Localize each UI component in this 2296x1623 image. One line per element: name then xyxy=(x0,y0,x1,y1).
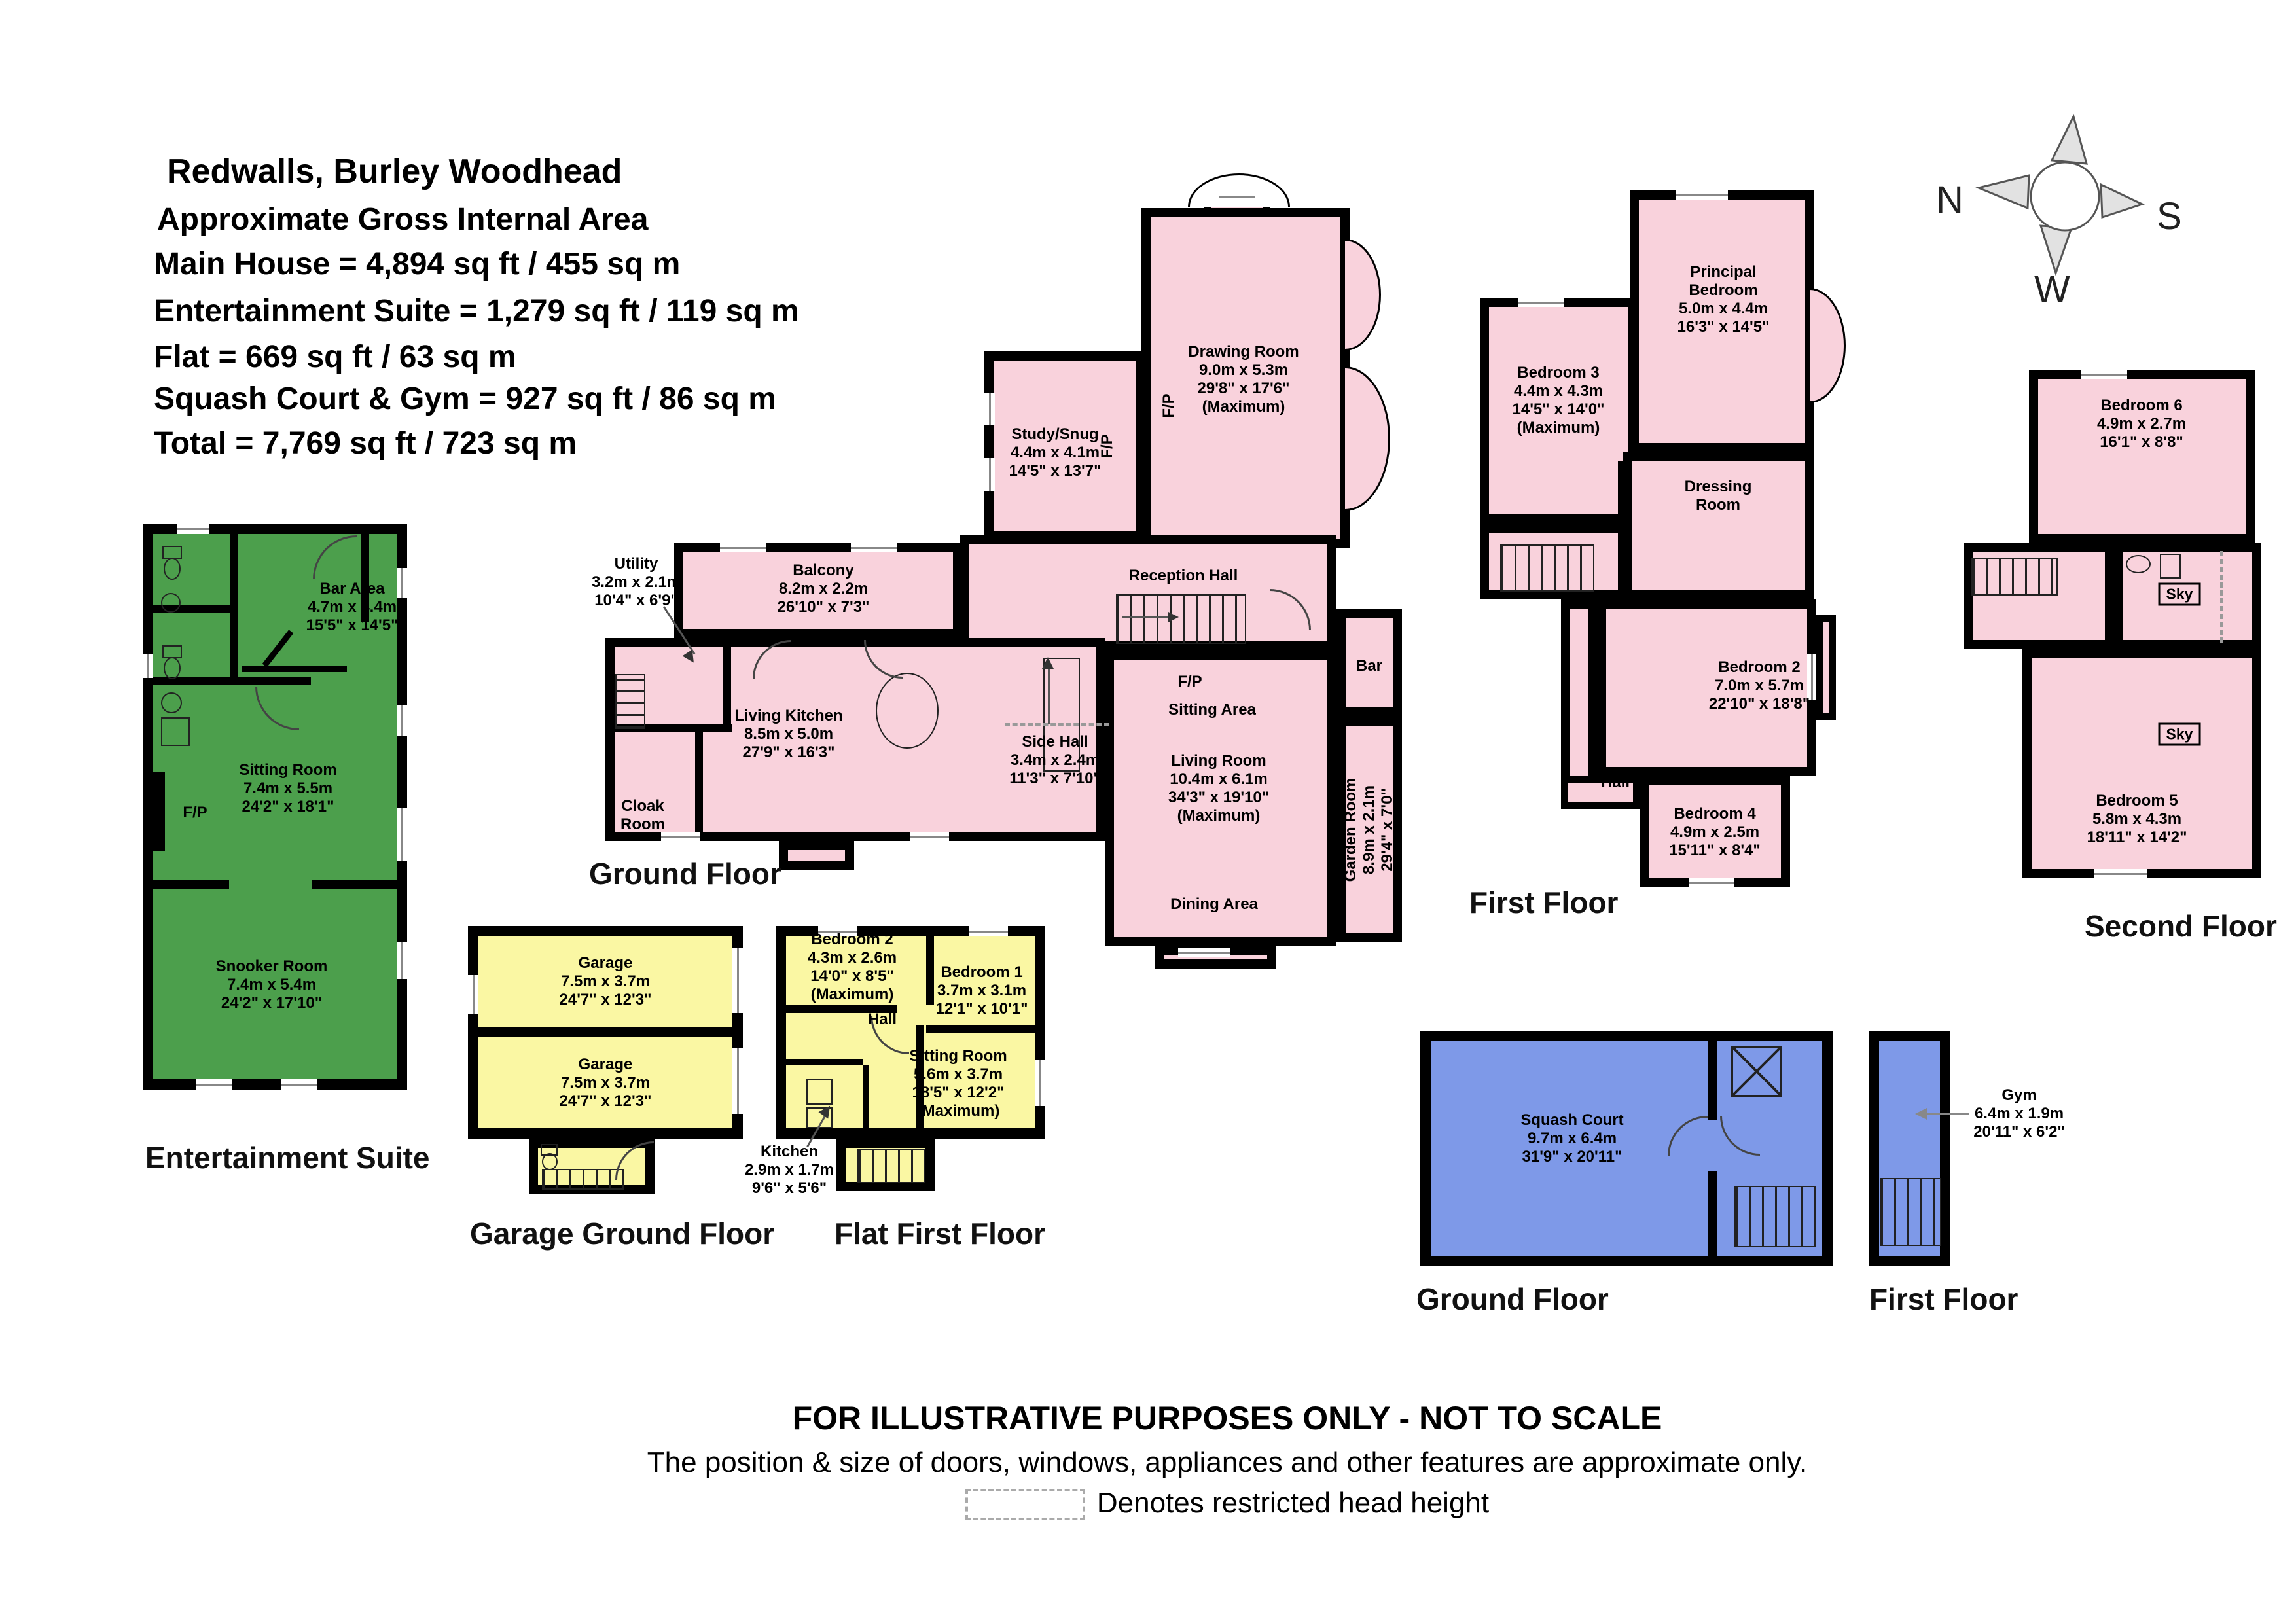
label-line: Sitting Area xyxy=(1168,701,1256,719)
label-line: 7.4m x 5.5m xyxy=(239,779,336,798)
room-label-bedroom-3: Bedroom 34.4m x 4.3m14'5" x 14'0"(Maximu… xyxy=(1513,364,1605,437)
label-line: 16'1" x 8'8" xyxy=(2097,433,2186,452)
compass-point-right xyxy=(2101,185,2142,217)
window xyxy=(984,458,995,491)
label-line: 14'5" x 14'0" xyxy=(1513,401,1605,419)
label-line: 31'9" x 20'11" xyxy=(1520,1148,1623,1166)
label-line: Bedroom 2 xyxy=(808,931,897,949)
header-subtitle: Approximate Gross Internal Area xyxy=(157,202,648,238)
room-dressing xyxy=(1623,452,1814,599)
label-line: Bedroom xyxy=(1677,281,1770,300)
label-line: Sky xyxy=(2166,726,2193,743)
garage-door-opening xyxy=(732,948,743,1013)
wall-es-snooker-right xyxy=(312,880,397,889)
header-entertainment-area: Entertainment Suite = 1,279 sq ft / 119 … xyxy=(154,293,799,329)
plan-title-squash-ground-floor: Ground Floor xyxy=(1416,1281,1609,1317)
wall-es-wc-column xyxy=(230,534,238,677)
label-line: Living Room xyxy=(1168,752,1269,770)
wall-squash-lower xyxy=(1708,1171,1717,1256)
restricted-head-height-line xyxy=(1005,723,1109,726)
basin-icon xyxy=(2126,555,2151,573)
stairs-utility xyxy=(615,674,645,729)
basin-icon xyxy=(161,692,182,713)
room-label-flat-sitting-room: Sitting Room5.6m x 3.7m18'5" x 12'2"(Max… xyxy=(909,1047,1007,1120)
label-line: Bedroom 6 xyxy=(2097,397,2186,415)
label-line: 26'10" x 7'3" xyxy=(778,598,870,616)
room-label-gym: Gym6.4m x 1.9m20'11" x 6'2" xyxy=(1973,1086,2065,1141)
label-line: 24'7" x 12'3" xyxy=(560,991,652,1009)
label-line: Utility xyxy=(592,555,681,573)
compass-label-s: S xyxy=(2157,195,2182,238)
room-label-squash-court: Squash Court9.7m x 6.4m31'9" x 20'11" xyxy=(1520,1111,1623,1166)
label-line: 8.9m x 2.1m xyxy=(1360,778,1378,882)
room-label-principal-bedroom: PrincipalBedroom5.0m x 4.4m16'3" x 14'5" xyxy=(1677,263,1770,336)
floorplan-canvas: Redwalls, Burley Woodhead Approximate Gr… xyxy=(0,0,2296,1623)
room-label-garden-room: Garden Room8.9m x 2.1m29'4" x 7'0" xyxy=(1342,778,1397,882)
window xyxy=(1178,948,1230,957)
label-line: 2.9m x 1.7m xyxy=(745,1161,834,1179)
room-label-flat-bedroom-2: Bedroom 24.3m x 2.6m14'0" x 8'5"(Maximum… xyxy=(808,931,897,1004)
label-line: F/P xyxy=(1177,673,1202,691)
plant-room-icon xyxy=(1731,1046,1782,1097)
room-bedroom-6 xyxy=(2029,370,2255,543)
label-line: 4.9m x 2.5m xyxy=(1669,823,1761,842)
room-label-bedroom-6: Bedroom 64.9m x 2.7m16'1" x 8'8" xyxy=(2097,397,2186,452)
header-main-house-area: Main House = 4,894 sq ft / 455 sq m xyxy=(154,246,680,282)
label-line: Reception Hall xyxy=(1129,567,1238,585)
label-line: 4.4m x 4.3m xyxy=(1513,382,1605,401)
label-line: 34'3" x 19'10" xyxy=(1168,789,1269,807)
label-line: 24'2" x 18'1" xyxy=(239,798,336,816)
wall-squash-upper xyxy=(1708,1041,1717,1120)
label-line: Snooker Room xyxy=(216,957,328,976)
plan-title-flat-first-floor: Flat First Floor xyxy=(834,1216,1045,1251)
window xyxy=(1219,192,1255,201)
label-line: 5.6m x 3.7m xyxy=(909,1065,1007,1084)
label-line: 3.2m x 2.1m xyxy=(592,573,681,592)
window xyxy=(969,926,1008,936)
label-line: 9.0m x 5.3m xyxy=(1188,361,1299,380)
window xyxy=(196,1079,232,1090)
stairs-arrow-head xyxy=(1168,612,1179,622)
window xyxy=(2081,370,2127,379)
stairs-flat xyxy=(857,1149,925,1183)
footer-disclaimer-text: The position & size of doors, windows, a… xyxy=(589,1446,1865,1479)
room-label-flat-bedroom-1: Bedroom 13.7m x 3.1m12'1" x 10'1" xyxy=(936,963,1028,1018)
footer-legend-text: Denotes restricted head height xyxy=(1097,1487,1489,1519)
plan-title-entertainment-suite: Entertainment Suite xyxy=(145,1140,430,1175)
label-line: Bar Area xyxy=(306,580,399,598)
label-line: Squash Court xyxy=(1520,1111,1623,1130)
label-line: 29'8" x 17'6" xyxy=(1188,380,1299,398)
label-line: 8.5m x 5.0m xyxy=(734,725,842,743)
label-line: Drawing Room xyxy=(1188,343,1299,361)
bay-window-arc xyxy=(1810,288,1846,403)
label-line: Gym xyxy=(1973,1086,2065,1105)
window xyxy=(468,975,478,1014)
label-line: Dressing xyxy=(1685,478,1752,496)
fireplace-label: F/P xyxy=(1160,393,1178,418)
bay-window-arc xyxy=(1345,366,1390,511)
room-label-flat-kitchen: Kitchen2.9m x 1.7m9'6" x 5'6" xyxy=(745,1143,834,1198)
label-line: 7.5m x 3.7m xyxy=(560,1074,652,1092)
label-line: 29'4" x 7'0" xyxy=(1378,778,1397,882)
room-label-reception-hall: Reception Hall xyxy=(1129,567,1238,585)
basin-icon xyxy=(161,593,181,613)
label-line: F/P xyxy=(1098,434,1117,458)
label-line: Principal xyxy=(1677,263,1770,281)
label-line: 4.3m x 2.6m xyxy=(808,949,897,967)
fireplace-label: F/P xyxy=(1177,673,1202,691)
kitchen-bay xyxy=(779,841,854,870)
label-line: 15'5" x 14'5" xyxy=(306,616,399,635)
window xyxy=(177,524,209,534)
gym-arrow-line xyxy=(1926,1113,1969,1115)
room-label-flat-hall: Hall xyxy=(868,1010,897,1029)
room-label-sitting-area: Sitting Area xyxy=(1168,701,1256,719)
room-label-dining-area: Dining Area xyxy=(1170,895,1258,914)
label-line: Sitting Room xyxy=(239,761,336,779)
window xyxy=(143,654,153,678)
label-line: Room xyxy=(1685,496,1752,514)
plan-title-second-floor: Second Floor xyxy=(2085,908,2277,944)
toilet-icon xyxy=(162,546,182,559)
es-fireplace-chimney xyxy=(143,772,165,851)
room-label-dressing-room: DressingRoom xyxy=(1685,478,1752,514)
label-line: Living Kitchen xyxy=(734,707,842,725)
window xyxy=(2094,869,2147,878)
bow-window-arc xyxy=(1188,173,1290,207)
label-line: 4.7m x 4.4m xyxy=(306,598,399,616)
fireplace-label: F/P xyxy=(1098,434,1117,458)
cooker-icon xyxy=(806,1079,833,1105)
stairs-reception xyxy=(1116,594,1246,644)
bar-counter xyxy=(242,666,347,672)
label-line: 18'11" x 14'2" xyxy=(2087,829,2187,847)
room-label-sitting-room: Sitting Room7.4m x 5.5m24'2" x 18'1" xyxy=(239,761,336,816)
room-label-utility: Utility3.2m x 2.1m10'4" x 6'9" xyxy=(592,555,681,610)
label-line: Bedroom 5 xyxy=(2087,792,2187,810)
window xyxy=(1035,1060,1045,1106)
label-line: 14'5" x 13'7" xyxy=(1009,462,1102,480)
label-line: Hall xyxy=(1601,774,1630,792)
label-line: Balcony xyxy=(778,562,870,580)
room-label-hall-first: Hall xyxy=(1601,774,1630,792)
label-line: Bedroom 1 xyxy=(936,963,1028,982)
wall-es-below-wc xyxy=(153,677,311,685)
room-label-bedroom-2-first: Bedroom 27.0m x 5.7m22'10" x 18'8" xyxy=(1709,658,1810,713)
header-flat-area: Flat = 669 sq ft / 63 sq m xyxy=(154,339,516,375)
header-squash-gym-area: Squash Court & Gym = 927 sq ft / 86 sq m xyxy=(154,381,776,417)
window xyxy=(1689,878,1734,887)
bay-window-arc xyxy=(1345,239,1381,351)
side-hall-arrow-line xyxy=(1048,668,1050,724)
label-line: 9'6" x 5'6" xyxy=(745,1179,834,1198)
label-line: 3.7m x 3.1m xyxy=(936,982,1028,1000)
label-line: 14'0" x 8'5" xyxy=(808,967,897,986)
plan-title-first-floor: First Floor xyxy=(1469,885,1618,920)
label-line: 4.4m x 4.1m xyxy=(1009,444,1102,462)
label-line: Sitting Room xyxy=(909,1047,1007,1065)
room-label-bedroom-5: Bedroom 55.8m x 4.3m18'11" x 14'2" xyxy=(2087,792,2187,847)
stairs-garage xyxy=(542,1169,624,1190)
room-label-bedroom-4: Bedroom 44.9m x 2.5m15'11" x 8'4" xyxy=(1669,805,1761,860)
compass-label-n: N xyxy=(1936,179,1964,221)
label-line: 6.4m x 1.9m xyxy=(1973,1105,2065,1123)
label-line: Sky xyxy=(2166,586,2193,603)
label-line: Cloak xyxy=(620,797,665,815)
label-line: 5.0m x 4.4m xyxy=(1677,300,1770,318)
label-line: Room xyxy=(620,815,665,834)
label-line: F/P xyxy=(1160,393,1178,418)
label-line: 12'1" x 10'1" xyxy=(936,1000,1028,1018)
room-label-bar-area: Bar Area4.7m x 4.4m15'5" x 14'5" xyxy=(306,580,399,635)
header-total-area: Total = 7,769 sq ft / 723 sq m xyxy=(154,425,577,461)
label-line: Bedroom 3 xyxy=(1513,364,1605,382)
shower-tray-icon xyxy=(161,717,190,746)
wall-utility xyxy=(723,647,731,732)
label-line: Bar xyxy=(1356,657,1382,675)
label-line: 9.7m x 6.4m xyxy=(1520,1130,1623,1148)
footer-legend: Denotes restricted head height xyxy=(589,1487,1865,1520)
stairs-first-floor xyxy=(1500,544,1594,592)
stairs-arrow-line xyxy=(1122,616,1168,618)
window xyxy=(910,832,949,841)
wall-cloak xyxy=(695,732,703,833)
label-line: Side Hall xyxy=(1009,733,1101,751)
window xyxy=(851,543,897,552)
label-line: 7.4m x 5.4m xyxy=(216,976,328,994)
label-line: (Maximum) xyxy=(909,1102,1007,1120)
label-line: 11'3" x 7'10" xyxy=(1009,770,1101,788)
compass-point-top xyxy=(2052,116,2087,164)
label-line: Garage xyxy=(560,954,652,972)
compass-point-left xyxy=(1979,175,2029,208)
toilet-icon xyxy=(2160,554,2181,579)
window xyxy=(1676,190,1728,200)
label-line: Bedroom 4 xyxy=(1669,805,1761,823)
window xyxy=(397,942,407,979)
room-label-bar: Bar xyxy=(1356,657,1382,675)
window xyxy=(397,808,407,861)
stairs-second-floor xyxy=(1971,558,2058,596)
compass-point-bottom xyxy=(2041,226,2072,273)
toilet-icon xyxy=(164,657,181,679)
chimney-living xyxy=(1164,643,1217,659)
plan-title-garage-ground-floor: Garage Ground Floor xyxy=(470,1216,774,1251)
window xyxy=(1518,298,1564,307)
label-line: 4.9m x 2.7m xyxy=(2097,415,2186,433)
room-label-balcony: Balcony8.2m x 2.2m26'10" x 7'3" xyxy=(778,562,870,616)
window xyxy=(984,393,995,425)
restricted-head-height-line xyxy=(2220,551,2223,643)
plan-title-ground-floor: Ground Floor xyxy=(589,856,781,891)
label-line: Hall xyxy=(868,1010,897,1029)
toilet-icon xyxy=(542,1153,558,1170)
label-line: 27'9" x 16'3" xyxy=(734,743,842,762)
wall-flat-bed-divider xyxy=(926,936,934,1005)
label-line: Study/Snug xyxy=(1009,425,1102,444)
label-line: Bedroom 2 xyxy=(1709,658,1810,677)
page-title: Redwalls, Burley Woodhead xyxy=(167,152,622,191)
wall-es-snooker-left xyxy=(153,880,229,889)
label-line: 20'11" x 6'2" xyxy=(1973,1123,2065,1141)
room-label-garage-1: Garage7.5m x 3.7m24'7" x 12'3" xyxy=(560,954,652,1009)
room-label-side-hall: Side Hall3.4m x 2.4m11'3" x 7'10" xyxy=(1009,733,1101,788)
label-line: 8.2m x 2.2m xyxy=(778,580,870,598)
label-line: 24'2" x 17'10" xyxy=(216,994,328,1012)
compass-label-w: W xyxy=(2034,268,2070,311)
label-line: 22'10" x 18'8" xyxy=(1709,695,1810,713)
label-line: 7.0m x 5.7m xyxy=(1709,677,1810,695)
toilet-icon xyxy=(164,558,181,580)
label-line: Garage xyxy=(560,1056,652,1074)
toilet-icon xyxy=(162,645,182,658)
side-hall-arrow-head xyxy=(1042,657,1054,669)
label-line: 5.8m x 4.3m xyxy=(2087,810,2187,829)
bedroom-2-bump xyxy=(1816,615,1836,720)
room-label-living-room: Living Room10.4m x 6.1m34'3" x 19'10"(Ma… xyxy=(1168,752,1269,825)
label-line: Garden Room xyxy=(1342,778,1360,882)
wall-dressing xyxy=(1618,461,1626,592)
label-line: (Maximum) xyxy=(808,986,897,1004)
label-line: 3.4m x 2.4m xyxy=(1009,751,1101,770)
skylight-label: Sky xyxy=(2159,723,2201,746)
label-line: 18'5" x 12'2" xyxy=(909,1084,1007,1102)
label-line: 10.4m x 6.1m xyxy=(1168,770,1269,789)
wall-flat-kitchen xyxy=(863,1065,869,1128)
window xyxy=(397,705,407,736)
gym-arrow-head xyxy=(1915,1108,1927,1120)
room-label-garage-2: Garage7.5m x 3.7m24'7" x 12'3" xyxy=(560,1056,652,1111)
window xyxy=(720,543,766,552)
label-line: F/P xyxy=(183,804,207,822)
label-line: 15'11" x 8'4" xyxy=(1669,842,1761,860)
skylight-label: Sky xyxy=(2159,583,2201,606)
restricted-head-height-swatch xyxy=(965,1489,1085,1520)
label-line: 10'4" x 6'9" xyxy=(592,592,681,610)
label-line: (Maximum) xyxy=(1188,398,1299,416)
room-label-cloak-room: CloakRoom xyxy=(620,797,665,834)
label-line: 24'7" x 12'3" xyxy=(560,1092,652,1111)
stairs-gym xyxy=(1880,1178,1941,1246)
stairs-squash xyxy=(1734,1186,1816,1247)
garage-door-opening xyxy=(732,1048,743,1114)
room-label-study-snug: Study/Snug4.4m x 4.1m14'5" x 13'7" xyxy=(1009,425,1102,480)
window xyxy=(661,832,700,841)
label-line: Dining Area xyxy=(1170,895,1258,914)
dining-table-icon xyxy=(876,673,939,749)
wall-garage-divider xyxy=(478,1027,732,1037)
room-label-living-kitchen: Living Kitchen8.5m x 5.0m27'9" x 16'3" xyxy=(734,707,842,762)
label-line: Kitchen xyxy=(745,1143,834,1161)
compass-circle xyxy=(2031,162,2099,230)
room-label-snooker-room: Snooker Room7.4m x 5.4m24'2" x 17'10" xyxy=(216,957,328,1012)
label-line: 16'3" x 14'5" xyxy=(1677,318,1770,336)
wall-flat-kitchen-top xyxy=(786,1059,863,1065)
label-line: (Maximum) xyxy=(1168,807,1269,825)
window xyxy=(281,1079,317,1090)
label-line: 7.5m x 3.7m xyxy=(560,972,652,991)
room-label-drawing-room: Drawing Room9.0m x 5.3m29'8" x 17'6"(Max… xyxy=(1188,343,1299,416)
plan-title-gym-first-floor: First Floor xyxy=(1869,1281,2018,1317)
label-line: (Maximum) xyxy=(1513,419,1605,437)
fireplace-label: F/P xyxy=(183,804,207,822)
compass-icon: N S W xyxy=(1931,92,2206,314)
wall-flat-bed1-bottom xyxy=(926,1025,1035,1033)
footer-disclaimer-title: FOR ILLUSTRATIVE PURPOSES ONLY - NOT TO … xyxy=(589,1399,1865,1437)
